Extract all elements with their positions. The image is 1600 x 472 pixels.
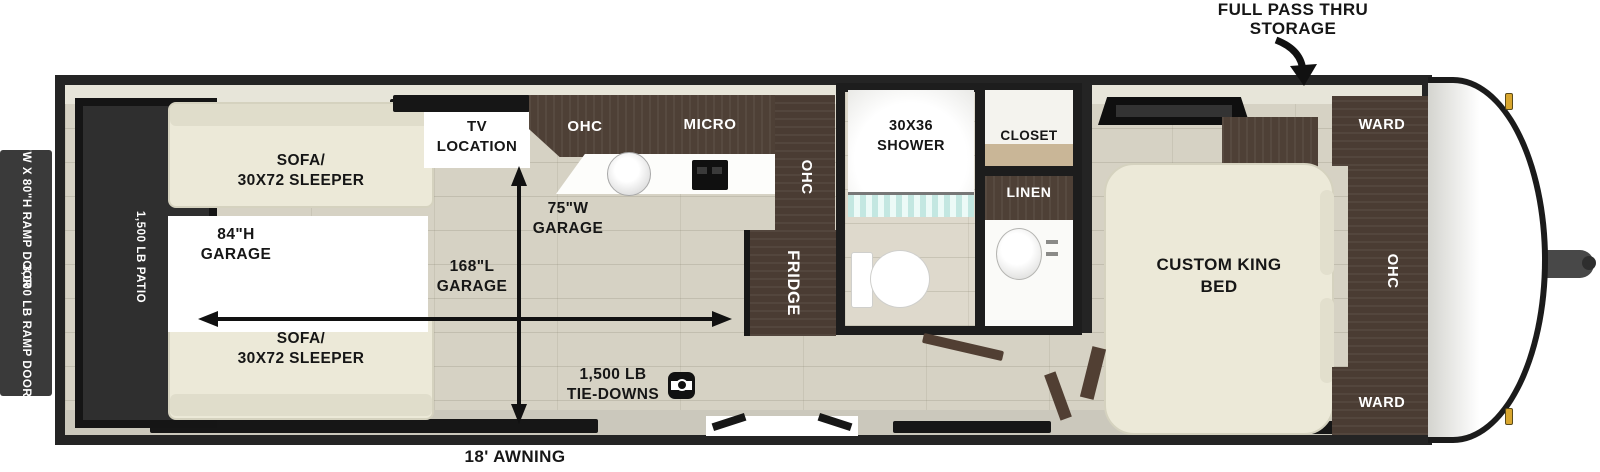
marker-light-top [1505,93,1513,110]
bathroom-sink [996,228,1042,280]
tie-down-icon [668,372,695,399]
bed-label-line1: CUSTOM KING [1104,255,1334,276]
ward-top-label: WARD [1332,117,1432,135]
kitchen-counter [556,154,778,194]
bed-label-line2: BED [1104,277,1334,298]
stove-burner-2 [712,167,722,174]
tv-bar [393,95,530,112]
bathroom-divider-wall [975,83,985,335]
sofa-bottom-backrest [170,394,432,416]
sofa-top-label-line2: 30X72 SLEEPER [168,172,434,191]
closet-bottom-wall [975,166,1082,176]
bedroom-ohc-label: OHC [1383,171,1401,371]
ramp-door-capacity-label: 3,000 LB RAMP DOOR [19,231,33,431]
hitch-ball-socket [1582,256,1596,270]
roof-vent-inner [1116,105,1232,117]
garage-height-line1: 84"H [176,226,296,245]
patio-label: 1,500 LB PATIO [133,177,147,337]
shower-label-line1: 30X36 [848,118,974,136]
floorplan-diagram: FULL PASS THRU STORAGE 90"W X 80"H RAMP … [0,0,1600,472]
bedroom-wall [1082,83,1092,333]
garage-length-line1: 168"L [412,258,532,277]
garage-width-line2: GARAGE [513,220,623,239]
sofa-bottom-label-line2: 30X72 SLEEPER [168,350,434,369]
tv-label-line2: LOCATION [424,138,530,156]
bedroom-ohc-text: OHC [1384,254,1401,289]
storage-callout-line2: STORAGE [1178,19,1408,40]
ramp-door-capacity-text: 3,000 LB RAMP DOOR [20,265,32,398]
awning-label: 18' AWNING [415,447,615,468]
shower-label-line2: SHOWER [848,138,974,156]
kitchen-ohc-label: OHC [540,118,630,136]
faucet-handle-1 [1046,240,1058,244]
sofa-bottom-label-line1: SOFA/ [168,330,434,349]
tie-down-icon-ring [676,379,688,391]
garage-length-line2: GARAGE [412,278,532,297]
ward-bottom-label: WARD [1332,395,1432,413]
storage-callout-line1: FULL PASS THRU [1178,0,1408,21]
sofa-top-label-line1: SOFA/ [168,152,434,171]
garage-width-line1: 75"W [513,200,623,219]
closet-label: CLOSET [985,128,1073,144]
custom-king-bed [1104,163,1334,435]
front-cap [1428,77,1548,443]
kitchen-micro-label: MICRO [655,116,765,134]
storage-arrow-curve [1276,40,1303,72]
bottom-window-garage [150,419,598,433]
kitchen-sink [607,152,651,196]
bottom-window-hall [893,421,1051,433]
shower-curtain [848,195,974,217]
stove-burner-1 [697,167,707,174]
fridge-text: FRIDGE [784,250,802,316]
marker-light-bottom [1505,408,1513,425]
toilet-bowl [870,250,930,308]
garage-height-line2: GARAGE [176,246,296,265]
linen-label: LINEN [985,184,1073,201]
faucet-handle-2 [1046,252,1058,256]
stove-cooktop [692,160,728,190]
closet-floor [985,144,1073,166]
fridge-label: FRIDGE [783,183,803,383]
tv-label-line1: TV [424,118,530,136]
bed-headboard-cabinet [1222,117,1318,169]
patio-text: 1,500 LB PATIO [134,211,146,303]
